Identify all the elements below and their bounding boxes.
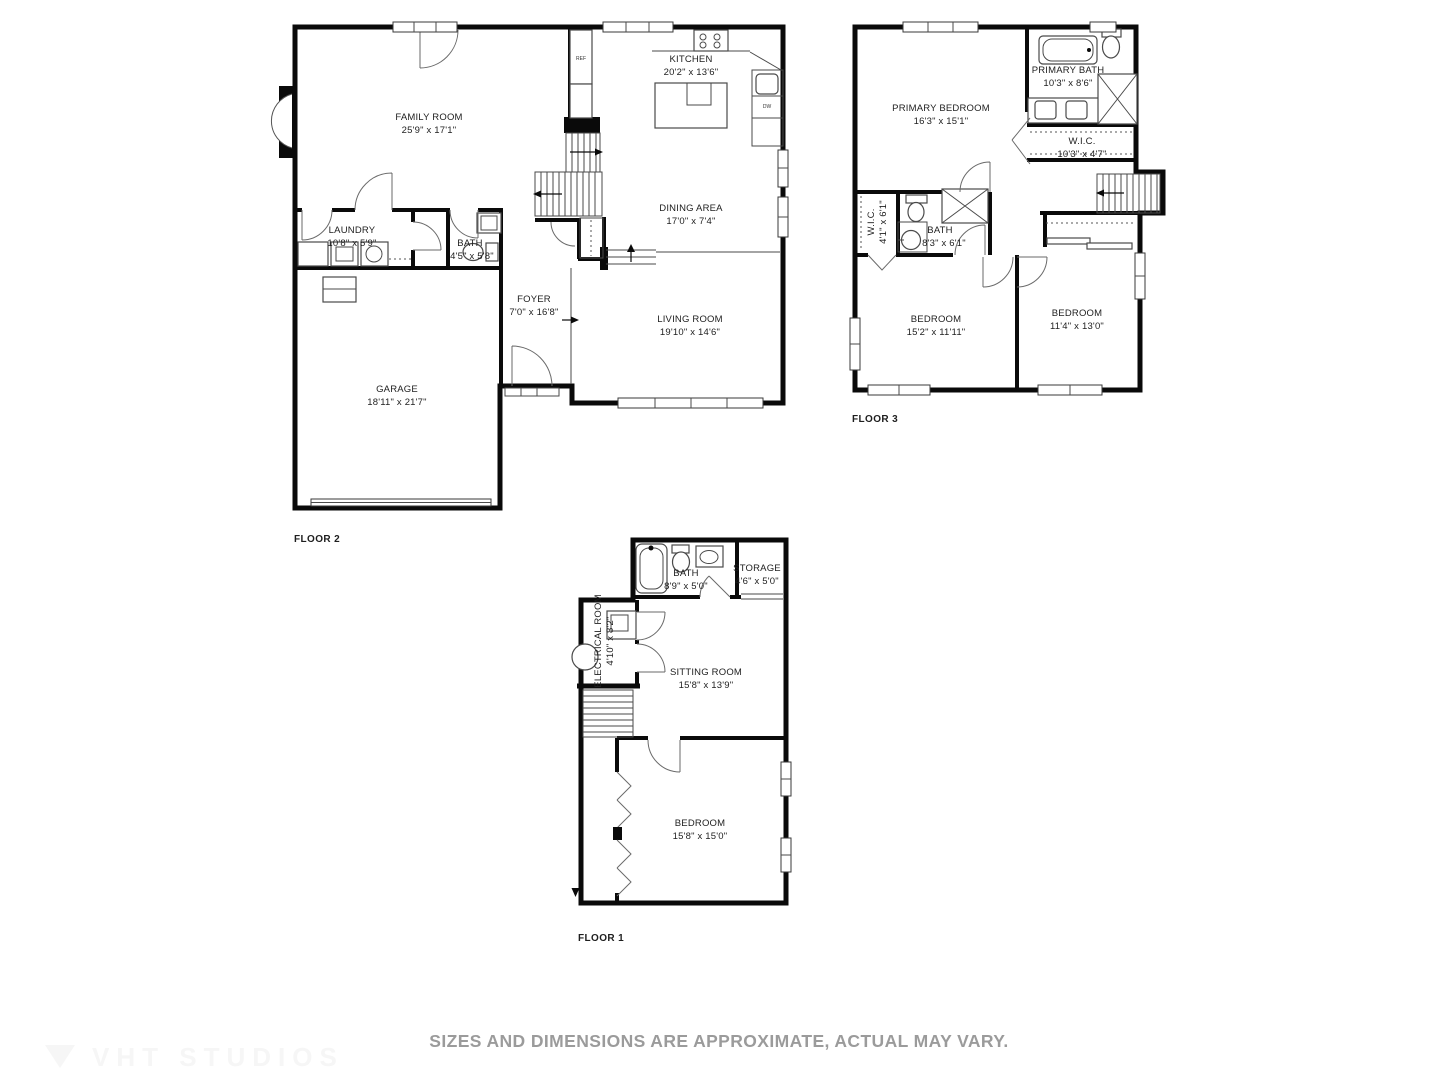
floor2-bath-dims: 4'5" x 5'8" [450,251,494,262]
foyer-label: FOYER [517,294,551,305]
kitchen-label: KITCHEN [669,54,712,65]
laundry-dims: 10'8" x 5'9" [327,238,376,249]
floor2-bath-label: BATH [457,238,482,249]
floor1-title: FLOOR 1 [578,933,624,944]
bedroom2-closet [1046,223,1133,249]
dining-area-dims: 17'0" x 7'4" [666,216,715,227]
garage-dims: 18'11" x 21'7" [367,397,426,408]
foyer-dims: 7'0" x 16'8" [509,307,558,318]
bedroom-closet-doors [613,772,631,896]
floor1-bedroom-dims: 15'8" x 15'0" [673,831,728,842]
primary-bedroom-label: PRIMARY BEDROOM [892,103,990,114]
primary-bath-label: PRIMARY BATH [1032,65,1105,76]
floor2-plan: REF DW [271,22,788,545]
sitting-room-label: SITTING ROOM [670,667,742,678]
bedroom1-dims: 15'2" x 11'11" [907,327,966,338]
family-room-label: FAMILY ROOM [395,112,462,123]
living-room-dims: 19'10" x 14'6" [660,327,720,338]
stove [694,30,728,51]
kitchen-fixtures: REF DW [570,30,783,146]
bathtub [636,544,667,593]
floor1-bath-dims: 8'9" x 5'0" [664,581,708,592]
primary-bedroom-dims: 16'3" x 15'1" [914,116,969,127]
dining-living-steps [606,244,780,264]
floor3-doors [955,162,1047,287]
bath-sink [902,231,921,250]
floor2-doors [302,30,575,396]
floor2-stairs [533,133,603,258]
watermark-text: VHT STUDIOS [92,1042,344,1072]
electrical-room-dims: 4'10" x 8'2" [605,616,616,665]
watermark-logo-icon [45,1045,75,1068]
dining-area-label: DINING AREA [659,203,723,214]
toilet [908,203,924,222]
floorplan-drawing: REF DW [0,0,1440,1080]
storage-label: STORAGE [733,563,781,574]
floor1-interior-walls [577,540,786,903]
floor3-stairs [1096,174,1160,213]
floor1-bedroom-label: BEDROOM [675,818,726,829]
disclaimer-text: SIZES AND DIMENSIONS ARE APPROXIMATE, AC… [429,1031,1008,1051]
floor1-plan: BATH 8'9" x 5'0" STORAGE 4'6" x 5'0" ELE… [572,540,792,944]
floor3-bath-dims: 8'3" x 6'1" [922,238,966,249]
kitchen-sink [756,74,778,94]
wic2-dims: 4'1" x 6'1" [878,200,889,244]
front-door [512,346,552,386]
floor2-title: FLOOR 2 [294,534,340,545]
toilet [1103,36,1120,58]
bedroom2-dims: 11'4" x 13'0" [1050,321,1104,332]
floor1-bath-label: BATH [673,568,698,579]
floor3-plan: PRIMARY BEDROOM 16'3" x 15'1" PRIMARY BA… [850,22,1163,425]
wic-label: W.I.C. [1068,136,1095,147]
bedroom2-label: BEDROOM [1052,308,1103,319]
laundry-label: LAUNDRY [329,225,376,236]
fireplace [271,86,296,158]
ref-label: REF [576,56,586,62]
sitting-room-dims: 15'8" x 13'9" [679,680,734,691]
family-room-dims: 25'9" x 17'1" [402,125,457,136]
electrical-room-label: ELECTRICAL ROOM [593,594,604,687]
garage-label: GARAGE [376,384,418,395]
floor3-title: FLOOR 3 [852,414,898,425]
wic2-label: W.I.C. [866,208,877,235]
primary-bath-dims: 10'3" x 8'6" [1043,78,1092,89]
primary-bath-fixtures [1028,29,1137,124]
floorplan-page: REF DW [0,0,1440,1080]
storage-dims: 4'6" x 5'0" [735,576,779,587]
dishwasher-label: DW [763,104,772,110]
floor3-bath-label: BATH [927,225,952,236]
living-room-label: LIVING ROOM [657,314,723,325]
watermark: VHT STUDIOS [45,1042,344,1072]
wic-dims: 10'3" x 4'7" [1057,149,1106,160]
floor2-interior-walls [295,27,608,386]
kitchen-dims: 20'2" x 13'6" [664,67,719,78]
bedroom1-label: BEDROOM [911,314,962,325]
